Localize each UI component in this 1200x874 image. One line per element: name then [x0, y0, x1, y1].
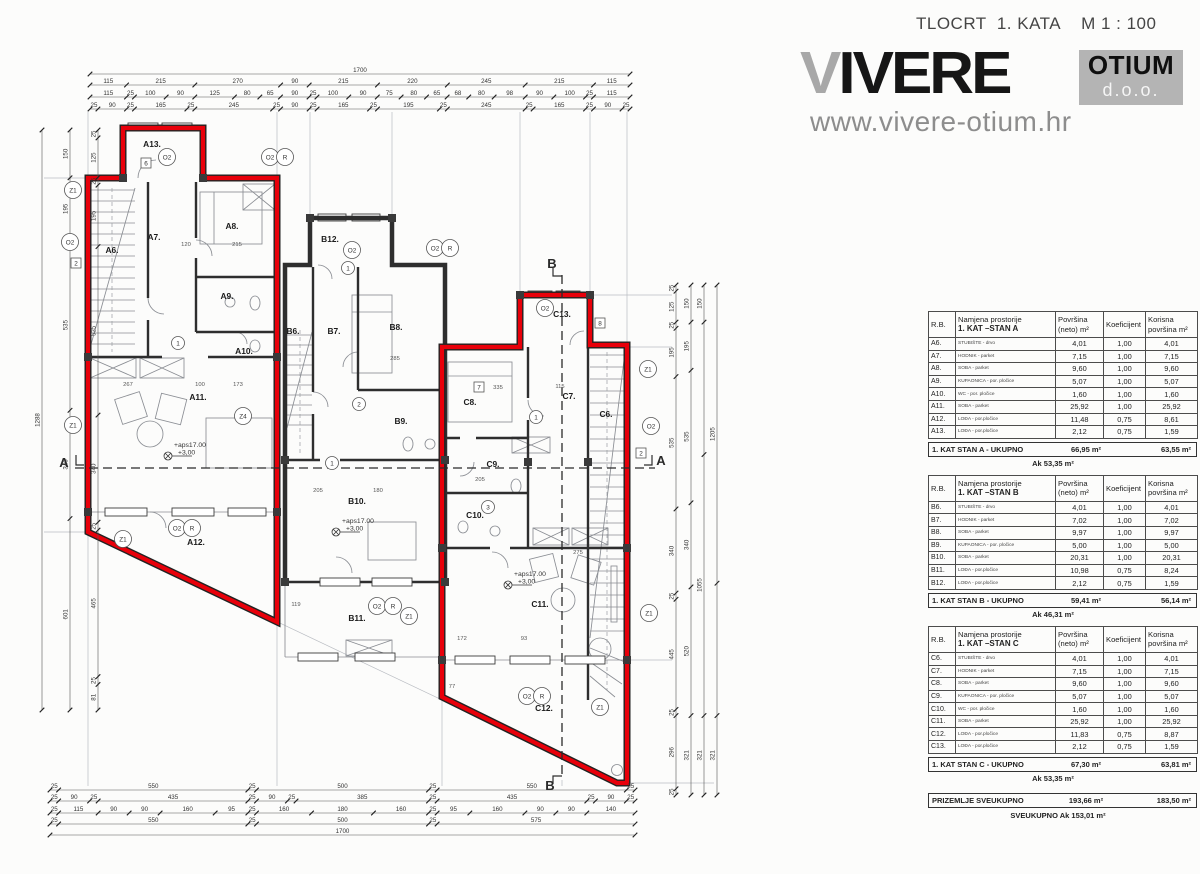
cell-koef: 1,00	[1104, 501, 1146, 514]
tag-2: 2	[353, 398, 366, 411]
cell-name: KUPAONICA - por. pločice	[956, 375, 1056, 388]
dim-label: 25	[627, 783, 634, 790]
room-label-C8: C8.	[463, 397, 476, 407]
cell-koef: 1,00	[1104, 526, 1146, 539]
table-row: B12.LOĐA - por.pločice2,120,751,59	[929, 577, 1198, 590]
col-header-koef: Koeficijent	[1104, 626, 1146, 652]
tag-1: 1	[172, 337, 185, 350]
room-label-B6: B6.	[286, 326, 299, 336]
dim-label: 25	[90, 794, 97, 801]
dim-label: 1055	[697, 578, 704, 592]
cell-name: STUBIŠTE - drvo	[956, 652, 1056, 665]
svg-text:R: R	[540, 693, 545, 700]
cell-koef: 0,75	[1104, 564, 1146, 577]
cell-neto: 5,07	[1056, 375, 1104, 388]
col-header-koef: Koeficijent	[1104, 475, 1146, 501]
dim-label: 80	[478, 90, 485, 97]
total-stan-c: 1. KAT STAN C - UKUPNO67,30 m²63,81 m²	[928, 757, 1197, 772]
inner-dim: 120	[181, 242, 191, 248]
tag-O2: O2	[62, 234, 79, 251]
table-row: A13.LOĐA - por.pločice2,120,751,59	[929, 426, 1198, 439]
total-stan-a: 1. KAT STAN A - UKUPNO66,95 m²63,55 m²	[928, 442, 1197, 457]
cell-koef: 1,00	[1104, 338, 1146, 351]
dim-label: 535	[669, 437, 676, 448]
dim-label: 125	[91, 152, 98, 163]
dim-label: 90	[177, 90, 184, 97]
svg-text:O2: O2	[266, 154, 275, 161]
cell-neto: 7,15	[1056, 350, 1104, 363]
dim-label: 270	[233, 78, 244, 85]
dim-label: 90	[537, 806, 544, 813]
cell-name: SOBA - parket	[956, 363, 1056, 376]
table-row: A11.SOBA - parket25,921,0025,92	[929, 400, 1198, 413]
room-label-A13: A13.	[143, 139, 161, 149]
cell-korisna: 1,59	[1146, 426, 1198, 439]
dim-label: 25	[440, 102, 447, 109]
cell-name: KUPAONICA - por. pločice	[956, 539, 1056, 552]
dim-label: 25	[249, 783, 256, 790]
cell-rb: C9.	[929, 690, 956, 703]
dim-label: 25	[249, 806, 256, 813]
cell-rb: C7.	[929, 665, 956, 678]
logo-wordmark: VIVERE	[800, 44, 1009, 105]
dim-label: 100	[565, 90, 576, 97]
inner-dim: 205	[313, 488, 323, 494]
cell-neto: 9,97	[1056, 526, 1104, 539]
dim-label: 25	[249, 817, 256, 824]
table-row: C6.STUBIŠTE - drvo4,011,004,01	[929, 652, 1198, 665]
svg-text:Z1: Z1	[69, 187, 77, 194]
dim-label: 500	[337, 783, 348, 790]
dim-label: 245	[229, 102, 240, 109]
dim-label: 90	[141, 806, 148, 813]
cell-name: HODNIK - parket	[956, 514, 1056, 527]
cell-neto: 25,92	[1056, 715, 1104, 728]
dim-label: 90	[109, 102, 116, 109]
dim-label: 180	[337, 806, 348, 813]
dim-label: 550	[527, 783, 538, 790]
room-label-B10: B10.	[348, 496, 366, 506]
inner-dim: 215	[232, 242, 242, 248]
svg-text:1: 1	[176, 340, 180, 347]
cell-neto: 11,48	[1056, 413, 1104, 426]
svg-text:Z1: Z1	[596, 704, 604, 711]
dim-label: 90	[71, 794, 78, 801]
dim-label: 25	[429, 783, 436, 790]
cell-name: LOĐA - por.pločice	[956, 741, 1056, 754]
dim-label: 25	[429, 794, 436, 801]
svg-text:+3,00: +3,00	[178, 450, 195, 457]
cell-koef: 1,00	[1104, 665, 1146, 678]
cell-koef: 1,00	[1104, 350, 1146, 363]
cell-neto: 2,12	[1056, 741, 1104, 754]
dim-label: 160	[182, 806, 193, 813]
dim-label: 25	[91, 177, 98, 184]
cell-korisna: 9,97	[1146, 526, 1198, 539]
tag-O2: O2	[427, 240, 444, 257]
cell-neto: 1,60	[1056, 388, 1104, 401]
dim-label: 90	[536, 90, 543, 97]
table-row: C9.KUPAONICA - por. pločice5,071,005,07	[929, 690, 1198, 703]
svg-text:O2: O2	[523, 693, 532, 700]
table-row: C10.WC - por. pločice1,601,001,60	[929, 703, 1198, 716]
svg-text:Z4: Z4	[239, 413, 247, 420]
cell-koef: 1,00	[1104, 703, 1146, 716]
table-row: B10.SOBA - parket20,311,0020,31	[929, 552, 1198, 565]
dim-label: 195	[403, 102, 414, 109]
svg-text:2: 2	[639, 450, 643, 457]
col-header-korisna: Korisnapovršina m²	[1146, 626, 1198, 652]
table-stan-a: R.B. Namjena prostorije1. KAT –STAN A Po…	[928, 311, 1198, 439]
room-label-B11: B11.	[348, 613, 365, 623]
svg-text:+aps17.00: +aps17.00	[174, 442, 206, 449]
tag-Z1: Z1	[115, 531, 132, 548]
dim-label: 150	[63, 148, 70, 159]
cell-koef: 0,75	[1104, 741, 1146, 754]
cell-neto: 1,60	[1056, 703, 1104, 716]
cell-koef: 1,00	[1104, 552, 1146, 565]
dim-label: 100	[145, 90, 156, 97]
table-row: B7.HODNIK - parket7,021,007,02	[929, 514, 1198, 527]
dim-label: 25	[51, 794, 58, 801]
dim-label: 296	[669, 746, 676, 757]
dim-label: 25	[51, 817, 58, 824]
dim-label: 160	[279, 806, 290, 813]
table-row: A9.KUPAONICA - por. pločice5,071,005,07	[929, 375, 1198, 388]
summary-ak: SVEUKUPNO Ak 153,01 m²	[958, 811, 1158, 820]
cell-name: LOĐA - por.pločice	[956, 426, 1056, 439]
inner-dim: 267	[123, 382, 133, 388]
tag-2: 2	[71, 258, 81, 268]
dim-label: 25	[588, 794, 595, 801]
dim-label: 1700	[336, 828, 350, 835]
inner-dim: 115	[555, 384, 564, 390]
cell-koef: 1,00	[1104, 375, 1146, 388]
room-label-B8: B8.	[389, 322, 402, 332]
col-header-name: Namjena prostorije1. KAT –STAN C	[956, 626, 1056, 652]
svg-text:O2: O2	[163, 154, 172, 161]
cell-name: SOBA - parket	[956, 678, 1056, 691]
svg-text:1: 1	[534, 414, 538, 421]
section-letter-A: A	[59, 455, 69, 470]
svg-text:O2: O2	[173, 525, 182, 532]
cell-neto: 7,15	[1056, 665, 1104, 678]
dim-label: 90	[604, 102, 611, 109]
tag-Z1: Z1	[640, 361, 657, 378]
cell-name: LOĐA - por.pločice	[956, 728, 1056, 741]
cell-koef: 1,00	[1104, 678, 1146, 691]
room-label-A9: A9.	[220, 291, 233, 301]
dim-label: 75	[386, 90, 393, 97]
dim-label: 80	[410, 90, 417, 97]
dim-label: 535	[63, 319, 70, 330]
tag-R: R	[442, 240, 459, 257]
dim-label: 90	[607, 794, 614, 801]
dim-label: 340	[91, 463, 98, 474]
dim-label: 25	[127, 102, 134, 109]
cell-neto: 9,60	[1056, 363, 1104, 376]
cell-neto: 5,00	[1056, 539, 1104, 552]
dim-label: 215	[554, 78, 565, 85]
dim-label: 25	[370, 102, 377, 109]
dim-label: 321	[697, 750, 704, 761]
table-row: B8.SOBA - parket9,971,009,97	[929, 526, 1198, 539]
dim-label: 575	[531, 817, 542, 824]
cell-neto: 7,02	[1056, 514, 1104, 527]
dim-label: 25	[586, 90, 593, 97]
room-label-C10: C10.	[466, 510, 484, 520]
dim-label: 195	[669, 347, 676, 358]
cell-name: HODNIK - parket	[956, 665, 1056, 678]
svg-text:2: 2	[74, 260, 78, 267]
cell-rb: B9.	[929, 539, 956, 552]
cell-rb: A6.	[929, 338, 956, 351]
logo-badge: OTIUM d.o.o.	[1079, 50, 1183, 105]
dim-label: 68	[454, 90, 461, 97]
col-header-korisna: Korisnapovršina m²	[1146, 475, 1198, 501]
cell-korisna: 7,15	[1146, 350, 1198, 363]
cell-name: SOBA - parket	[956, 526, 1056, 539]
dim-label: 165	[156, 102, 167, 109]
svg-text:R: R	[391, 603, 396, 610]
cell-koef: 0,75	[1104, 728, 1146, 741]
cell-rb: B6.	[929, 501, 956, 514]
unit-b-walls	[285, 218, 445, 582]
room-label-A8: A8.	[225, 221, 238, 231]
dim-label: 65	[267, 90, 274, 97]
table-row: C11.SOBA - parket25,921,0025,92	[929, 715, 1198, 728]
dim-label: 445	[669, 649, 676, 660]
dim-label: 465	[91, 598, 98, 609]
dim-label: 25	[669, 284, 676, 291]
dim-label: 25	[273, 102, 280, 109]
cell-name: WC - por. pločice	[956, 388, 1056, 401]
dim-label: 81	[91, 693, 98, 700]
cell-rb: B8.	[929, 526, 956, 539]
table-row: A8.SOBA - parket9,601,009,60	[929, 363, 1198, 376]
dim-label: 90	[291, 90, 298, 97]
plan-labels: A6.A7.A8.A9.A10.A11.A12.A13.B6.B7.B8.B9.…	[59, 139, 666, 793]
cell-neto: 4,01	[1056, 501, 1104, 514]
dim-label: 160	[396, 806, 407, 813]
dim-label: 435	[168, 794, 179, 801]
dim-label: 245	[481, 78, 492, 85]
svg-text:O2: O2	[431, 245, 440, 252]
dim-label: 321	[684, 750, 691, 761]
dim-label: 435	[507, 794, 518, 801]
cell-koef: 0,75	[1104, 577, 1146, 590]
cell-neto: 2,12	[1056, 577, 1104, 590]
tag-Z1: Z1	[65, 417, 82, 434]
cell-name: SOBA - parket	[956, 715, 1056, 728]
cell-koef: 1,00	[1104, 400, 1146, 413]
tag-R: R	[534, 688, 551, 705]
cell-korisna: 5,07	[1146, 375, 1198, 388]
cell-neto: 5,07	[1056, 690, 1104, 703]
tag-R: R	[184, 520, 201, 537]
tag-1: 1	[326, 457, 339, 470]
room-label-C9: C9.	[486, 459, 499, 469]
website-url: www.vivere-otium.hr	[810, 106, 1072, 138]
svg-text:+3,00: +3,00	[518, 579, 535, 586]
table-row: B9.KUPAONICA - por. pločice5,001,005,00	[929, 539, 1198, 552]
col-header-area: Površina(neto) m²	[1056, 312, 1104, 338]
svg-text:O2: O2	[373, 603, 382, 610]
cell-korisna: 4,01	[1146, 501, 1198, 514]
cell-koef: 1,00	[1104, 363, 1146, 376]
cell-rb: A13.	[929, 426, 956, 439]
cell-korisna: 5,07	[1146, 690, 1198, 703]
logo-badge-doo: d.o.o.	[1079, 80, 1183, 100]
svg-text:8: 8	[598, 320, 602, 327]
cell-korisna: 20,31	[1146, 552, 1198, 565]
dim-label: 115	[103, 90, 113, 97]
dim-label: 25	[526, 102, 533, 109]
cell-korisna: 5,00	[1146, 539, 1198, 552]
col-header-rb: R.B.	[929, 312, 956, 338]
tag-1: 1	[342, 262, 355, 275]
ak-stan-b: Ak 46,31 m²	[988, 610, 1118, 619]
room-label-C6: C6.	[599, 409, 612, 419]
cell-rb: C10.	[929, 703, 956, 716]
tag-7: 7	[474, 382, 484, 392]
col-header-rb: R.B.	[929, 626, 956, 652]
cell-name: LOĐA - por.pločice	[956, 577, 1056, 590]
dim-label: 385	[357, 794, 368, 801]
dim-label: 25	[623, 102, 630, 109]
dim-label: 90	[269, 794, 276, 801]
cell-korisna: 7,15	[1146, 665, 1198, 678]
table-row: B6.STUBIŠTE - drvo4,011,004,01	[929, 501, 1198, 514]
tag-Z1: Z1	[65, 182, 82, 199]
tag-Z4: Z4	[235, 408, 252, 425]
tag-R: R	[385, 598, 402, 615]
tag-O2: O2	[262, 149, 279, 166]
col-header-korisna: Korisnapovršina m²	[1146, 312, 1198, 338]
logo-badge-otium: OTIUM	[1079, 50, 1183, 80]
table-row: A12.LOĐA - por.pločice11,480,758,61	[929, 413, 1198, 426]
dim-label: 245	[481, 102, 492, 109]
cell-neto: 4,01	[1056, 652, 1104, 665]
dim-label: 150	[697, 298, 704, 309]
area-tables: R.B. Namjena prostorije1. KAT –STAN A Po…	[928, 311, 1197, 820]
cell-name: SOBA - parket	[956, 400, 1056, 413]
svg-text:2: 2	[357, 401, 361, 408]
dim-label: 160	[492, 806, 503, 813]
cell-rb: A7.	[929, 350, 956, 363]
room-label-B7: B7.	[327, 326, 340, 336]
cell-rb: B11.	[929, 564, 956, 577]
dim-label: 1205	[710, 427, 717, 441]
table-row: C8.SOBA - parket9,601,009,60	[929, 678, 1198, 691]
cell-neto: 20,31	[1056, 552, 1104, 565]
dim-label: 25	[91, 102, 98, 109]
dim-label: 98	[506, 90, 513, 97]
dim-label: 25	[91, 677, 98, 684]
elevation-mark: +aps17.00+3,00	[164, 442, 206, 460]
tag-Z1: Z1	[401, 608, 418, 625]
cell-rb: A12.	[929, 413, 956, 426]
svg-text:+aps17.00: +aps17.00	[514, 571, 546, 578]
dim-label: 115	[607, 90, 617, 97]
dim-label: 25	[586, 102, 593, 109]
dim-label: 90	[568, 806, 575, 813]
svg-text:3: 3	[486, 504, 490, 511]
cell-neto: 10,98	[1056, 564, 1104, 577]
cell-korisna: 1,60	[1146, 703, 1198, 716]
tag-3: 3	[482, 501, 495, 514]
unit-a-outline	[88, 128, 277, 622]
svg-text:R: R	[283, 154, 288, 161]
inner-dim: 335	[493, 385, 503, 391]
cell-korisna: 25,92	[1146, 715, 1198, 728]
svg-text:7: 7	[477, 384, 481, 391]
dim-label: 195	[91, 210, 98, 221]
cell-korisna: 8,24	[1146, 564, 1198, 577]
dim-label: 95	[228, 806, 235, 813]
dim-label: 340	[669, 545, 676, 556]
dim-label: 25	[51, 783, 58, 790]
room-label-C13: C13.	[553, 309, 571, 319]
dim-label: 25	[91, 130, 98, 137]
section-letter-B: B	[547, 256, 556, 271]
svg-text:+3,00: +3,00	[346, 526, 363, 533]
svg-text:Z1: Z1	[69, 422, 77, 429]
dim-label: 340	[684, 539, 691, 550]
tag-Z1: Z1	[592, 699, 609, 716]
dim-label: 1700	[353, 67, 367, 74]
dim-label: 115	[607, 78, 617, 85]
section-letter-B: B	[545, 778, 554, 793]
svg-text:1: 1	[346, 265, 350, 272]
dim-label: 165	[554, 102, 565, 109]
dim-label: 115	[73, 806, 83, 813]
col-header-area: Površina(neto) m²	[1056, 475, 1104, 501]
cell-koef: 1,00	[1104, 388, 1146, 401]
cell-korisna: 1,60	[1146, 388, 1198, 401]
col-header-koef: Koeficijent	[1104, 312, 1146, 338]
section-letter-A: A	[656, 453, 666, 468]
dim-label: 25	[669, 708, 676, 715]
dim-label: 25	[91, 522, 98, 529]
svg-text:Z1: Z1	[645, 610, 653, 617]
cell-koef: 1,00	[1104, 514, 1146, 527]
cell-name: STUBIŠTE - drvo	[956, 338, 1056, 351]
cell-name: LOĐA - por.pločice	[956, 413, 1056, 426]
svg-text:O2: O2	[348, 247, 357, 254]
cell-koef: 1,00	[1104, 652, 1146, 665]
cell-rb: A11.	[929, 400, 956, 413]
dim-label: 25	[429, 817, 436, 824]
room-label-B12: B12.	[321, 234, 339, 244]
tag-1: 1	[530, 411, 543, 424]
dim-label: 95	[450, 806, 457, 813]
tag-O2: O2	[369, 598, 386, 615]
table-stan-b: R.B. Namjena prostorije1. KAT –STAN B Po…	[928, 475, 1198, 590]
dim-label: 25	[249, 794, 256, 801]
dim-label: 65	[433, 90, 440, 97]
dim-label: 25	[187, 102, 194, 109]
inner-dim: 119	[291, 602, 300, 608]
cell-korisna: 9,60	[1146, 363, 1198, 376]
tag-Z1: Z1	[641, 605, 658, 622]
cell-rb: C12.	[929, 728, 956, 741]
cell-name: WC - por. pločice	[956, 703, 1056, 716]
cell-korisna: 4,01	[1146, 338, 1198, 351]
furniture	[115, 192, 623, 776]
cell-rb: C6.	[929, 652, 956, 665]
svg-text:1: 1	[330, 460, 334, 467]
